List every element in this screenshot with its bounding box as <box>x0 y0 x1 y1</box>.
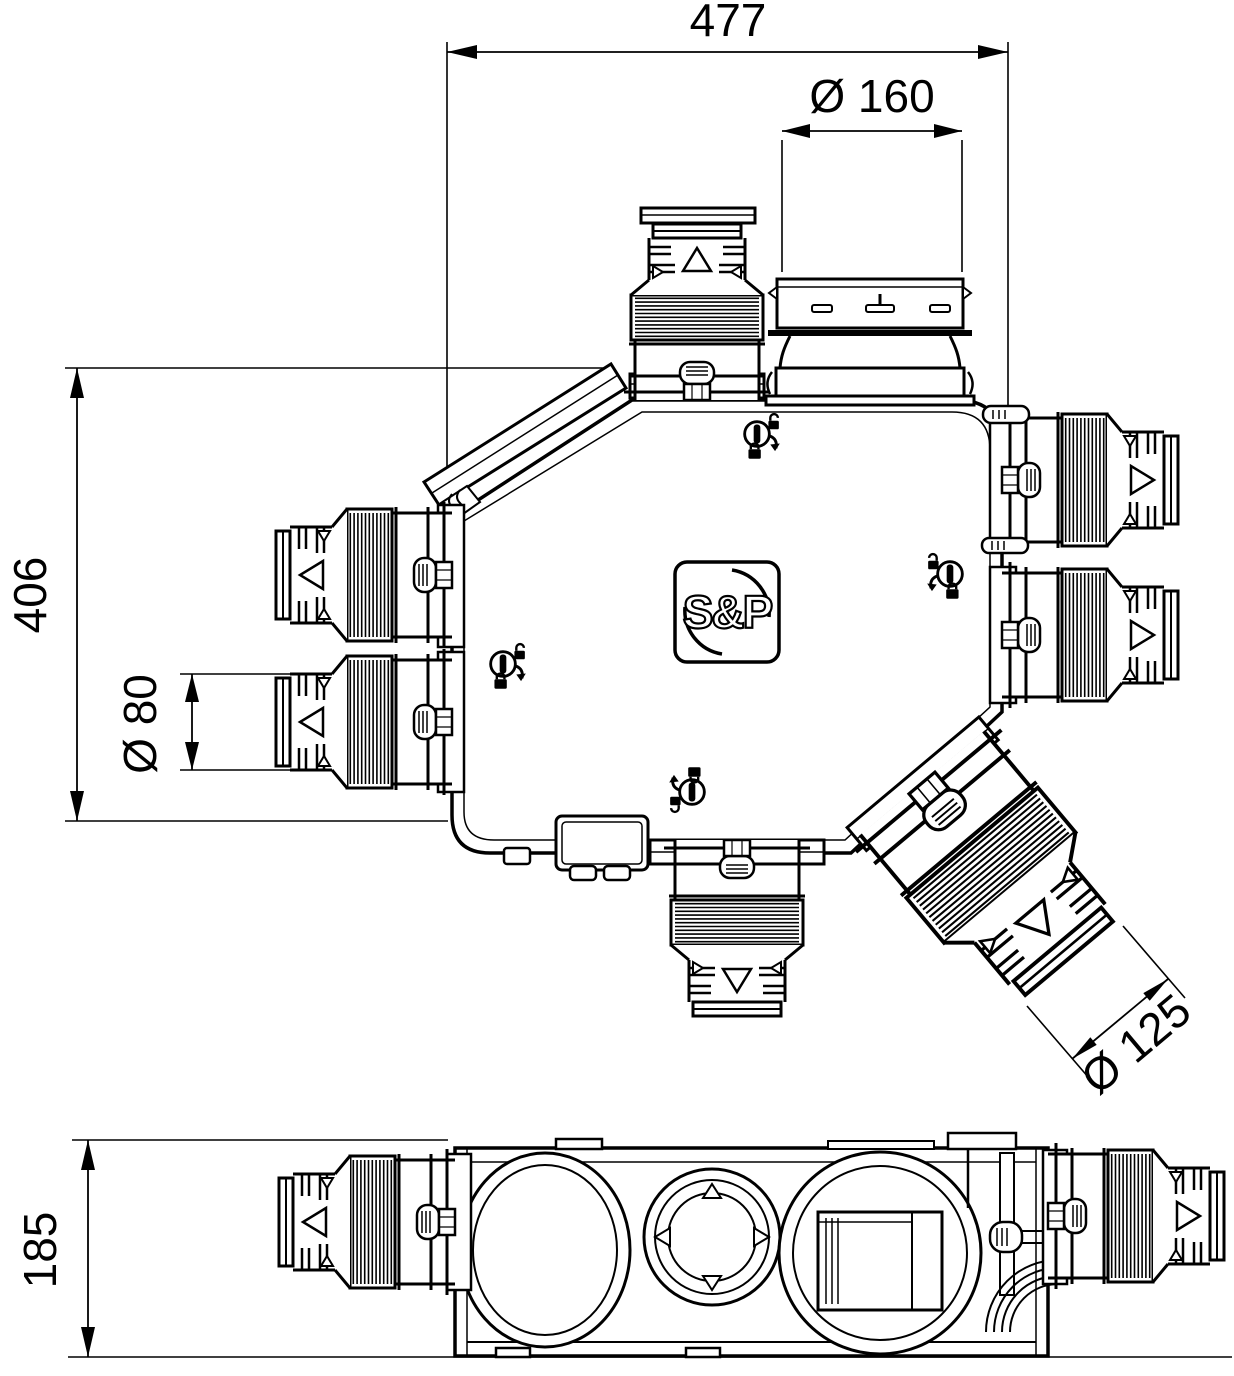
spigot-top-center <box>624 224 770 400</box>
dimension-angled-port-diameter: Ø 125 <box>1071 979 1200 1104</box>
dim-label-top-port: Ø 160 <box>809 70 934 122</box>
spigot-right-lower <box>1002 562 1178 708</box>
dimension-top-port-diameter: Ø 160 <box>782 70 962 138</box>
dim-label-body-height: 185 <box>14 1212 66 1289</box>
dim-label-overall-depth: 406 <box>4 557 56 634</box>
front-spigot-left <box>279 1149 455 1295</box>
logo-text: S&P <box>683 586 773 638</box>
front-foot-left <box>496 1348 530 1357</box>
technical-drawing-page: S&P <box>0 0 1234 1376</box>
top-view: S&P <box>276 208 1178 1019</box>
front-opening-middle <box>644 1169 780 1305</box>
spigot-left-upper <box>276 502 452 648</box>
front-foot-right <box>686 1348 720 1357</box>
ventilation-unit-dimension-drawing: S&P <box>0 0 1234 1376</box>
spigot-left-lower <box>276 649 452 795</box>
dimension-overall-depth: 406 <box>4 368 84 821</box>
dim-label-overall-width: 477 <box>690 0 767 46</box>
spigot-right-upper <box>1002 407 1178 553</box>
dimension-body-height: 185 <box>14 1140 95 1357</box>
port-160 <box>766 277 974 405</box>
top-spigot-cap-plate <box>641 208 755 223</box>
front-opening-right <box>779 1152 981 1354</box>
dim-label-left-port: Ø 80 <box>114 674 166 774</box>
brand-logo: S&P <box>675 562 779 662</box>
dimension-overall-width: 477 <box>447 0 1008 59</box>
front-view <box>279 1133 1224 1357</box>
front-opening-left <box>460 1153 630 1347</box>
dimension-left-port-diameter: Ø 80 <box>114 674 199 774</box>
spigot-bottom-center <box>664 840 810 1016</box>
front-spigot-right <box>1048 1143 1224 1289</box>
